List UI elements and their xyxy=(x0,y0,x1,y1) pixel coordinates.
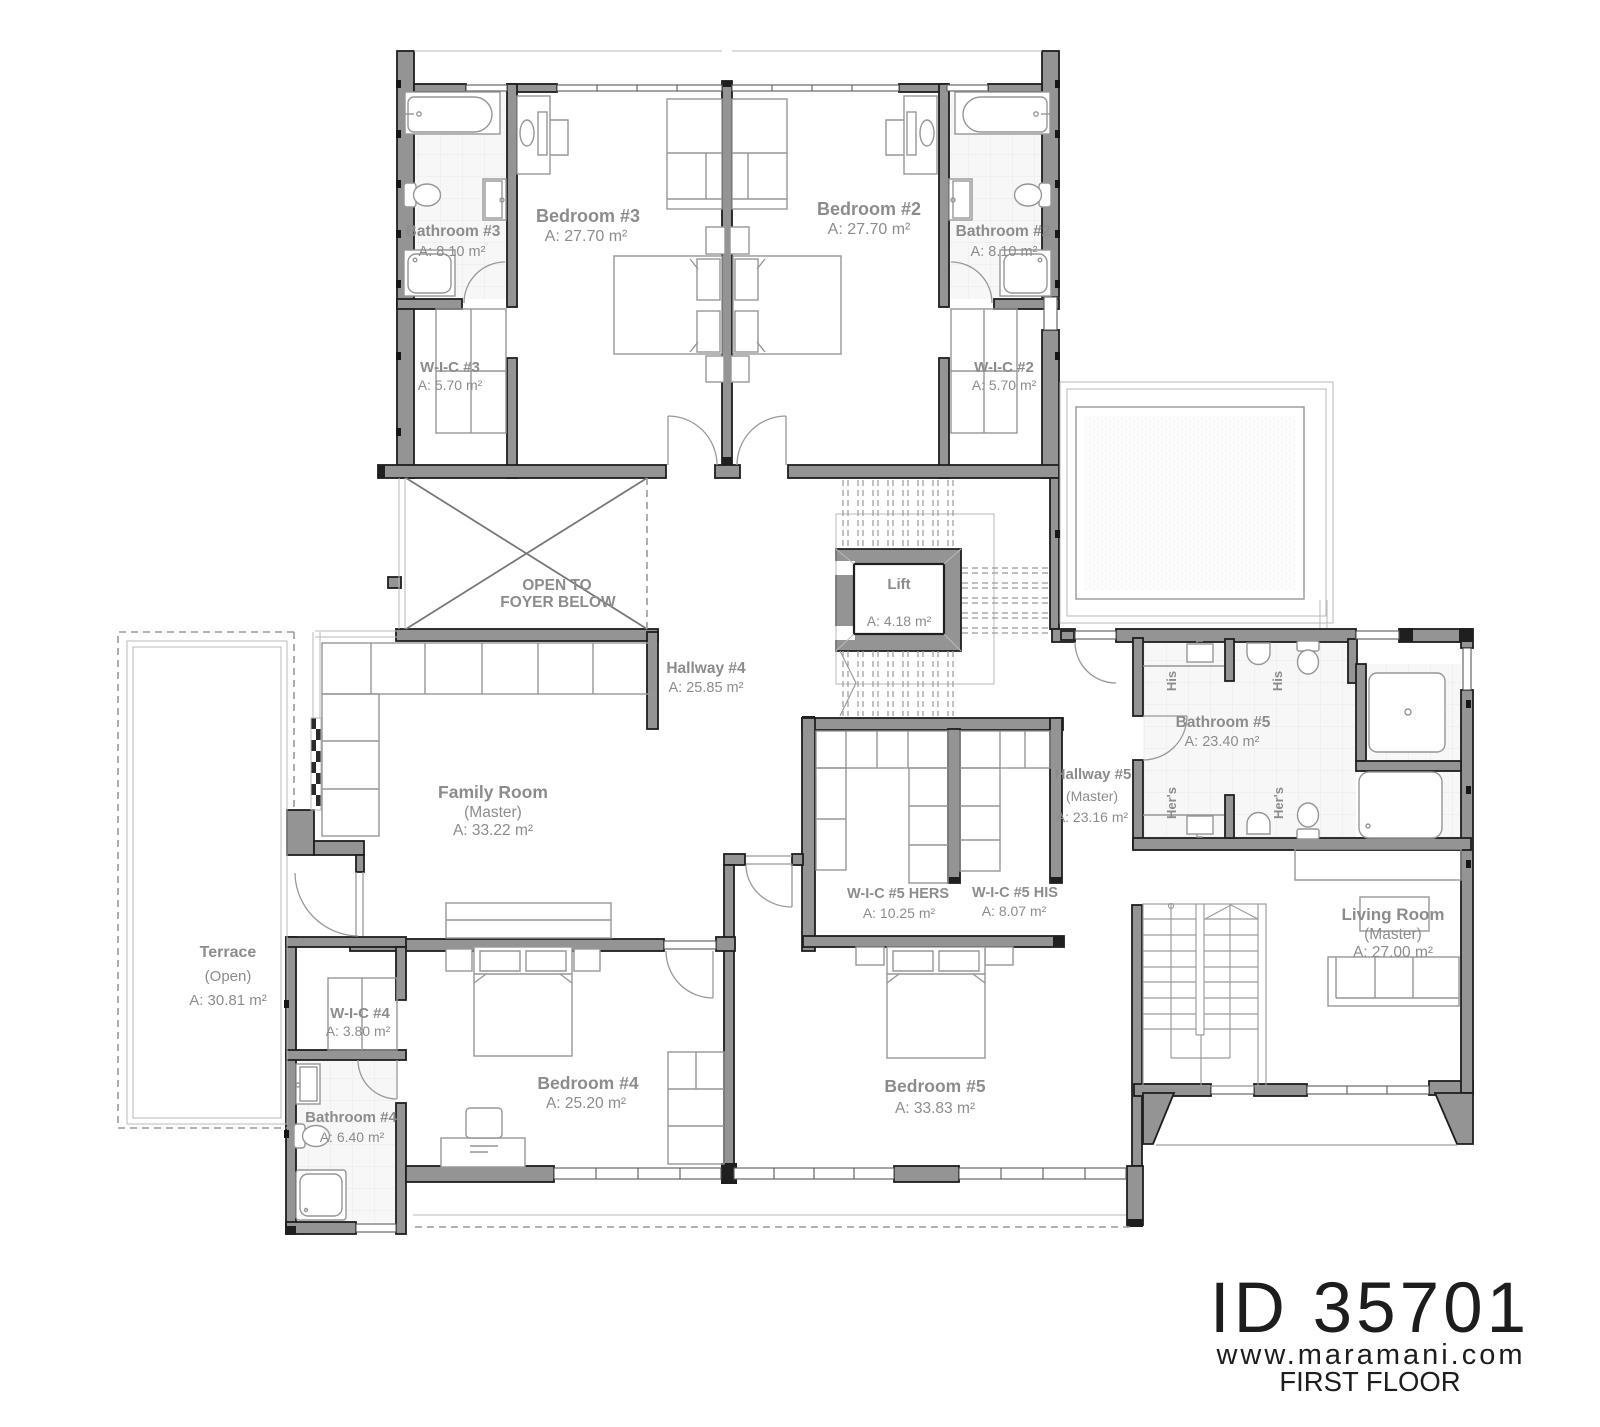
svg-text:A: 33.22 m²: A: 33.22 m² xyxy=(453,822,533,839)
svg-text:A: 8.07 m²: A: 8.07 m² xyxy=(982,903,1047,919)
svg-text:A: 27.70 m²: A: 27.70 m² xyxy=(828,221,911,238)
svg-text:FOYER BELOW: FOYER BELOW xyxy=(500,594,616,611)
svg-text:A: 8.10 m²: A: 8.10 m² xyxy=(971,244,1038,260)
svg-text:W-I-C #5 HERS: W-I-C #5 HERS xyxy=(847,886,949,902)
svg-text:Bathroom #2: Bathroom #2 xyxy=(956,223,1051,240)
svg-text:(Master): (Master) xyxy=(1364,926,1422,943)
svg-text:Lift: Lift xyxy=(887,576,910,593)
svg-text:Bathroom #4: Bathroom #4 xyxy=(305,1109,397,1126)
svg-text:A: 23.16 m²: A: 23.16 m² xyxy=(1056,809,1129,825)
svg-text:Bathroom #5: Bathroom #5 xyxy=(1176,714,1271,731)
svg-text:Living Room: Living Room xyxy=(1342,905,1445,924)
svg-text:Her's: Her's xyxy=(1164,787,1179,819)
svg-text:A: 25.20 m²: A: 25.20 m² xyxy=(546,1095,626,1112)
svg-text:A: 5.70 m²: A: 5.70 m² xyxy=(418,377,483,393)
svg-text:W-I-C #4: W-I-C #4 xyxy=(330,1005,390,1022)
svg-text:(Master): (Master) xyxy=(464,804,522,821)
svg-text:A: 30.81 m²: A: 30.81 m² xyxy=(189,992,267,1009)
svg-text:OPEN TO: OPEN TO xyxy=(522,577,591,594)
svg-text:Bedroom #2: Bedroom #2 xyxy=(817,199,921,219)
svg-text:His: His xyxy=(1164,671,1179,691)
svg-text:ID 35701: ID 35701 xyxy=(1210,1269,1530,1348)
svg-text:A: 27.70 m²: A: 27.70 m² xyxy=(545,228,628,245)
svg-text:His: His xyxy=(1270,671,1285,691)
svg-text:A: 33.83 m²: A: 33.83 m² xyxy=(895,1100,975,1117)
svg-text:Bedroom #4: Bedroom #4 xyxy=(537,1073,638,1093)
svg-text:A: 4.18 m²: A: 4.18 m² xyxy=(867,613,932,629)
svg-text:FIRST FLOOR: FIRST FLOOR xyxy=(1279,1366,1460,1397)
svg-text:(Open): (Open) xyxy=(205,968,252,985)
svg-text:(Master): (Master) xyxy=(1066,788,1118,804)
svg-text:W-I-C #2: W-I-C #2 xyxy=(974,359,1034,376)
svg-text:Bedroom #5: Bedroom #5 xyxy=(884,1076,985,1096)
svg-text:Hallway #4: Hallway #4 xyxy=(666,660,746,677)
svg-text:A: 5.70 m²: A: 5.70 m² xyxy=(972,377,1037,393)
svg-text:Her's: Her's xyxy=(1271,787,1286,819)
svg-text:Bathroom #3: Bathroom #3 xyxy=(406,223,501,240)
svg-text:A: 25.85 m²: A: 25.85 m² xyxy=(669,680,744,696)
svg-text:Hallway #5: Hallway #5 xyxy=(1055,766,1132,783)
svg-text:A: 6.40 m²: A: 6.40 m² xyxy=(320,1129,385,1145)
svg-text:W-I-C #3: W-I-C #3 xyxy=(420,359,480,376)
svg-text:Bedroom #3: Bedroom #3 xyxy=(536,206,640,226)
svg-text:A: 23.40 m²: A: 23.40 m² xyxy=(1185,734,1260,750)
svg-text:W-I-C #5 HIS: W-I-C #5 HIS xyxy=(972,885,1058,901)
svg-text:A: 3.80 m²: A: 3.80 m² xyxy=(326,1023,391,1039)
svg-text:A: 8.10 m²: A: 8.10 m² xyxy=(419,244,486,260)
svg-text:Family Room: Family Room xyxy=(438,782,548,802)
svg-text:Terrace: Terrace xyxy=(200,944,257,961)
svg-text:A: 10.25 m²: A: 10.25 m² xyxy=(863,905,936,921)
svg-text:A: 27.00 m²: A: 27.00 m² xyxy=(1353,944,1433,961)
